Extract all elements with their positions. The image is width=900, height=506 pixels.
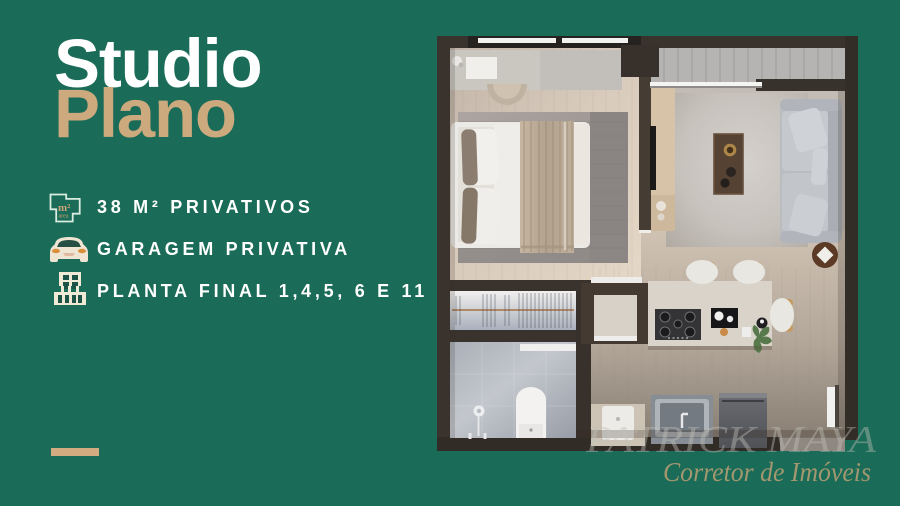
svg-text:Corretor de Imóveis: Corretor de Imóveis (663, 457, 871, 487)
svg-text:PATRICK MAYA: PATRICK MAYA (585, 419, 877, 461)
